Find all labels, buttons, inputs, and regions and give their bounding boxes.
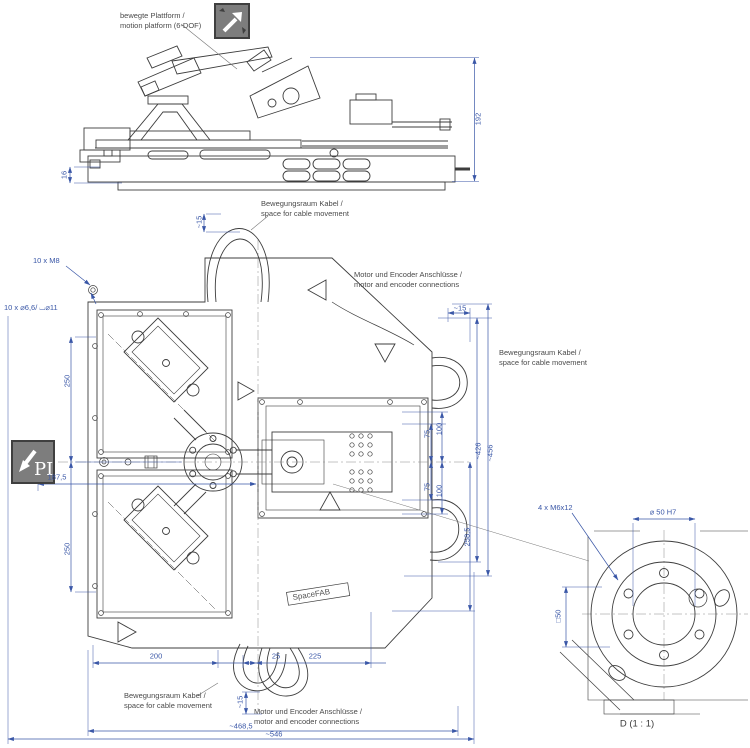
dim-cable-bottom-15: ~15 <box>236 696 245 709</box>
side-elevation-view <box>80 46 470 190</box>
dim-100-lower: 100 <box>435 485 444 498</box>
dim-468-5: ~468,5 <box>229 722 252 731</box>
dim-250-lower: 250 <box>63 543 72 556</box>
dim-192: 192 <box>474 113 483 126</box>
dimension-lines <box>8 58 695 739</box>
drawing-linework: SpaceFAB <box>0 0 750 748</box>
dim-16: 16 <box>60 171 69 179</box>
dimension-extension-lines <box>8 58 695 745</box>
dim-456: ~456 <box>486 445 495 462</box>
dim-25: 25 <box>272 652 280 661</box>
dim-200: 200 <box>150 652 163 661</box>
dim-250-upper: 250 <box>63 375 72 388</box>
detail-view-title: D (1 : 1) <box>620 719 654 730</box>
label-moving-platform: bewegte Plattform / motion platform (6-D… <box>120 11 201 31</box>
label-cable-space-bottom: Bewegungsraum Kabel / space for cable mo… <box>124 691 212 711</box>
dim-187-5: 187,5 <box>48 473 67 482</box>
label-moving-platform-en: motion platform (6-DOF) <box>120 21 201 31</box>
dim-75-upper: 75 <box>423 430 432 438</box>
label-motor-encoder-bottom: Motor und Encoder Anschlüsse / motor and… <box>254 707 362 727</box>
label-holes-m8: 10 x M8 <box>33 256 60 266</box>
label-through-holes: 10 x ⌀6,6/ ⌴⌀11 <box>4 303 58 313</box>
dim-cable-right-15: ~15 <box>454 304 467 313</box>
dim-258-5: 258,5 <box>463 528 472 547</box>
label-moving-platform-de: bewegte Plattform / <box>120 11 201 21</box>
dim-546: ~546 <box>266 730 283 739</box>
label-cable-space-right: Bewegungsraum Kabel / space for cable mo… <box>499 348 587 368</box>
dim-100-upper: 100 <box>435 423 444 436</box>
dim-cable-top-15: ~15 <box>195 216 204 229</box>
technical-drawing-canvas: SpaceFAB <box>0 0 750 748</box>
dim-square-50: □50 <box>554 610 563 623</box>
label-cable-space-top: Bewegungsraum Kabel / space for cable mo… <box>261 199 349 219</box>
detail-view <box>560 531 748 714</box>
motion-icon <box>214 3 250 39</box>
label-detail-screws: 4 x M6x12 <box>538 503 573 513</box>
label-motor-encoder-top: Motor und Encoder Anschlüsse / motor and… <box>354 270 462 290</box>
dim-225: 225 <box>309 652 322 661</box>
plan-view <box>88 228 467 696</box>
dim-75-lower: 75 <box>423 483 432 491</box>
dim-detail-bore: ⌀ 50 H7 <box>650 508 677 517</box>
dim-426: ~426 <box>474 443 483 460</box>
